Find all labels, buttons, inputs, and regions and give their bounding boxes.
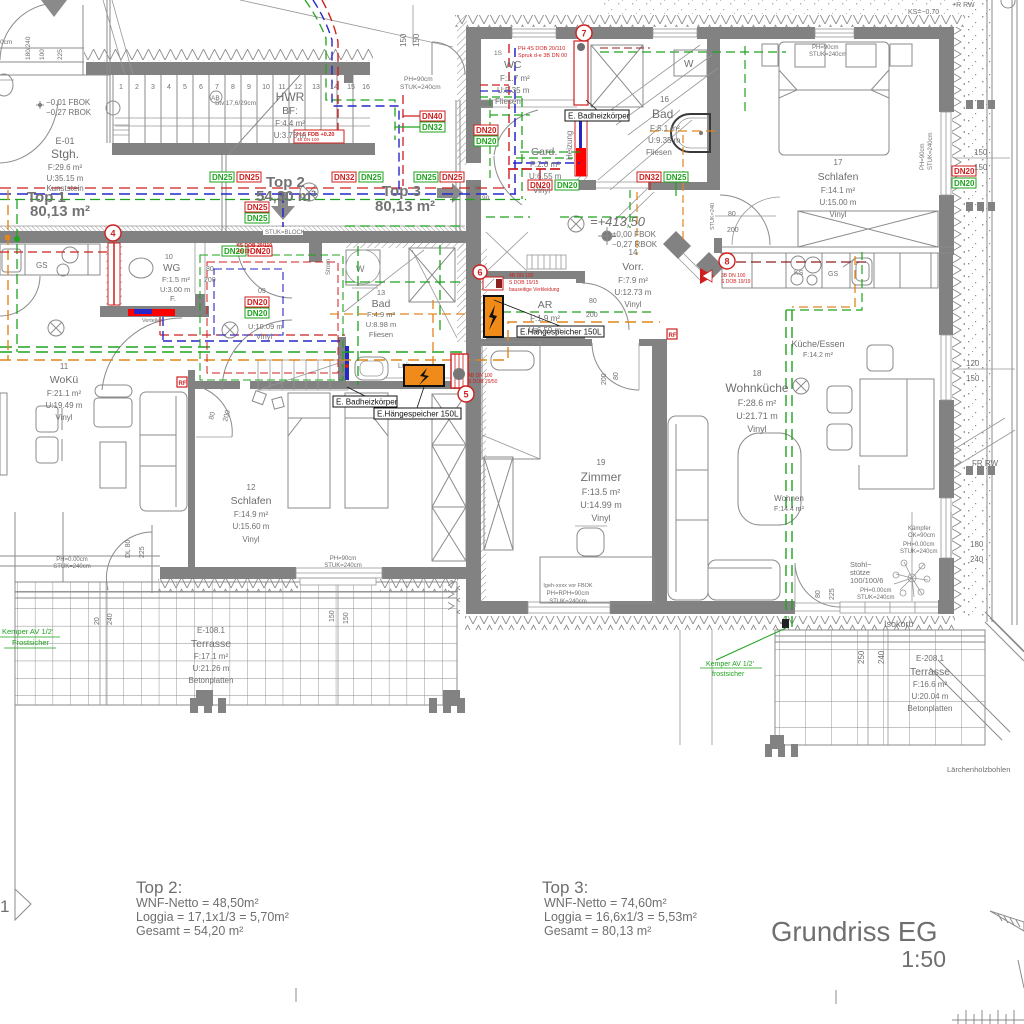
svg-text:DL 80: DL 80 — [125, 539, 132, 558]
svg-text:F:13.5 m²: F:13.5 m² — [582, 487, 621, 497]
svg-text:±0,00 FBOK: ±0,00 FBOK — [612, 230, 657, 239]
svg-text:19: 19 — [597, 458, 606, 467]
svg-text:11: 11 — [60, 362, 69, 371]
svg-text:PH=0.00cm: PH=0.00cm — [860, 588, 892, 594]
svg-text:Isokorb: Isokorb — [884, 619, 914, 629]
svg-text:DN25: DN25 — [212, 173, 233, 182]
svg-text:F:14.9 m²: F:14.9 m² — [234, 510, 269, 519]
svg-text:4: 4 — [167, 84, 171, 91]
svg-text:200: 200 — [586, 312, 598, 319]
svg-text:U:20.04 m: U:20.04 m — [912, 692, 949, 701]
svg-text:HWR: HWR — [276, 90, 305, 104]
svg-text:PH=90cm: PH=90cm — [920, 143, 926, 170]
svg-text:18: 18 — [753, 369, 762, 378]
svg-text:150: 150 — [412, 33, 421, 47]
svg-text:150: 150 — [399, 33, 408, 47]
svg-text:Top 2:: Top 2: — [136, 878, 182, 897]
svg-text:14: 14 — [330, 84, 338, 91]
svg-text:Terrasse: Terrasse — [191, 638, 231, 650]
svg-text:E-208.1: E-208.1 — [916, 654, 945, 663]
svg-text:8: 8 — [231, 84, 235, 91]
svg-text:F:14.2 m²: F:14.2 m² — [803, 352, 834, 359]
svg-text:1S: 1S — [494, 50, 503, 57]
svg-text:Bad: Bad — [372, 298, 391, 310]
svg-text:−0,01 FBOK: −0,01 FBOK — [46, 98, 91, 107]
svg-text:17: 17 — [834, 158, 843, 167]
svg-text:7: 7 — [581, 29, 586, 39]
svg-text:90: 90 — [482, 195, 490, 202]
svg-text:PH 4S DOB 20/110: PH 4S DOB 20/110 — [518, 46, 565, 52]
svg-text:W: W — [684, 59, 694, 70]
svg-text:Fliesen: Fliesen — [495, 97, 521, 106]
svg-text:WC: WC — [504, 59, 522, 71]
svg-text:225: 225 — [57, 49, 64, 60]
svg-text:200: 200 — [204, 277, 216, 284]
svg-text:STUK=240cm: STUK=240cm — [324, 563, 362, 569]
svg-text:10: 10 — [262, 84, 270, 91]
svg-text:U:5.35 m: U:5.35 m — [497, 86, 530, 95]
svg-text:−0,27 RBOK: −0,27 RBOK — [46, 108, 92, 117]
svg-text:8: 8 — [724, 257, 729, 267]
svg-text:U:15.60 m: U:15.60 m — [233, 522, 270, 531]
svg-text:U:9.35 m: U:9.35 m — [648, 136, 681, 145]
svg-text:Stv.17,6/29cm: Stv.17,6/29cm — [215, 100, 256, 107]
svg-text:Vorr.: Vorr. — [622, 261, 644, 273]
svg-text:Terrasse: Terrasse — [910, 666, 950, 678]
svg-text:250: 250 — [857, 650, 866, 664]
svg-text:DN40: DN40 — [422, 112, 443, 121]
svg-text:PH=0.00cm: PH=0.00cm — [56, 557, 88, 563]
svg-text:Vinyl: Vinyl — [55, 413, 72, 422]
svg-text:13: 13 — [312, 84, 320, 91]
svg-text:1:50: 1:50 — [901, 946, 946, 972]
svg-text:13: 13 — [377, 288, 385, 297]
svg-text:F:16.6 m²: F:16.6 m² — [913, 680, 948, 689]
svg-text:F:21.1 m²: F:21.1 m² — [47, 389, 82, 398]
svg-text:E.Hängespeicher 150L: E.Hängespeicher 150L — [377, 410, 459, 419]
svg-text:150: 150 — [329, 610, 336, 622]
svg-text:Schlafen: Schlafen — [231, 495, 272, 507]
svg-text:09: 09 — [258, 288, 266, 295]
svg-text:4B DN 100: 4B DN 100 — [509, 273, 534, 279]
svg-text:BF:: BF: — [282, 106, 298, 117]
svg-text:PH=0.00cm: PH=0.00cm — [903, 542, 935, 548]
svg-text:6: 6 — [199, 84, 203, 91]
svg-text:80: 80 — [613, 372, 620, 380]
svg-text:AB: AB — [211, 95, 220, 102]
svg-text:15: 15 — [347, 84, 355, 91]
svg-text:Loggia = 17,1x1/3 = 5,70m²: Loggia = 17,1x1/3 = 5,70m² — [136, 910, 289, 924]
svg-text:U:35.15 m: U:35.15 m — [47, 174, 84, 183]
svg-text:240: 240 — [877, 650, 886, 664]
svg-text:U:6.55 m: U:6.55 m — [529, 172, 562, 181]
svg-text:STUK=240cm: STUK=240cm — [928, 132, 934, 170]
svg-text:S DOB 19/19: S DOB 19/19 — [721, 279, 751, 285]
svg-text:150: 150 — [343, 612, 350, 624]
svg-text:240: 240 — [107, 613, 114, 625]
svg-text:U:15.00 m: U:15.00 m — [820, 198, 857, 207]
svg-text:20: 20 — [94, 617, 101, 625]
svg-text:F:14.1 m²: F:14.1 m² — [821, 186, 856, 195]
svg-text:DN25: DN25 — [239, 173, 260, 182]
svg-text:STUK=240: STUK=240 — [710, 203, 716, 230]
svg-text:12: 12 — [247, 483, 256, 492]
svg-text:Zimmer: Zimmer — [581, 470, 622, 484]
svg-text:bauseitige Verkleidung: bauseitige Verkleidung — [509, 287, 560, 293]
svg-text:Vinyl: Vinyl — [591, 513, 610, 523]
svg-text:Fliesen: Fliesen — [369, 330, 393, 339]
svg-text:90: 90 — [474, 185, 482, 192]
svg-text:80,13 m²: 80,13 m² — [375, 198, 435, 215]
svg-text:54,30 m²: 54,30 m² — [256, 188, 316, 205]
svg-text:200: 200 — [601, 373, 608, 385]
svg-text:Vinyl: Vinyl — [747, 424, 766, 434]
svg-text:16: 16 — [660, 95, 669, 104]
svg-text:F:4.9 m²: F:4.9 m² — [367, 310, 395, 319]
svg-text:80: 80 — [815, 590, 822, 598]
svg-text:DN20: DN20 — [247, 309, 268, 318]
svg-text:Vinyl: Vinyl — [829, 210, 846, 219]
svg-text:DN25: DN25 — [416, 173, 437, 182]
svg-text:DN25: DN25 — [442, 173, 463, 182]
svg-text:Stgh.: Stgh. — [51, 147, 79, 161]
svg-text:14: 14 — [629, 248, 638, 257]
svg-text:PH=90cm: PH=90cm — [404, 76, 433, 83]
svg-text:STUK=240cm: STUK=240cm — [53, 564, 91, 570]
svg-text:U:14.99 m: U:14.99 m — [580, 500, 622, 510]
svg-text:Betonplatten: Betonplatten — [908, 704, 953, 713]
svg-text:DN32: DN32 — [639, 173, 660, 182]
svg-text:Lärchenholzbohlen: Lärchenholzbohlen — [947, 765, 1010, 774]
svg-text:F:4.4 m²: F:4.4 m² — [275, 119, 305, 128]
svg-text:DN32: DN32 — [334, 173, 355, 182]
svg-text:Frostsicher: Frostsicher — [12, 638, 50, 647]
svg-text:Gesamt = 54,20 m²: Gesamt = 54,20 m² — [136, 924, 243, 938]
svg-text:F:14.4 m²: F:14.4 m² — [774, 506, 805, 513]
svg-text:1: 1 — [0, 897, 9, 916]
svg-text:200: 200 — [727, 227, 739, 234]
svg-text:RF: RF — [179, 381, 187, 387]
svg-text:STUK=240cm: STUK=240cm — [857, 595, 895, 601]
svg-text:Heizung: Heizung — [565, 131, 574, 160]
svg-text:+R RW: +R RW — [952, 2, 975, 9]
svg-text:DN20: DN20 — [954, 167, 975, 176]
svg-text:225: 225 — [139, 546, 146, 558]
svg-text:U:21.71 m: U:21.71 m — [736, 411, 778, 421]
svg-text:Loggia = 16,6x1/3 = 5,53m²: Loggia = 16,6x1/3 = 5,53m² — [544, 910, 697, 924]
svg-text:3: 3 — [151, 84, 155, 91]
svg-text:240: 240 — [970, 555, 984, 564]
svg-text:F:28.6 m²: F:28.6 m² — [738, 398, 777, 408]
svg-text:7: 7 — [215, 84, 219, 91]
svg-text:DN20: DN20 — [557, 181, 578, 190]
svg-text:U:19.49 m: U:19.49 m — [46, 401, 83, 410]
svg-text:WNF-Netto = 48,50m²: WNF-Netto = 48,50m² — [136, 896, 259, 910]
svg-text:0cm: 0cm — [0, 39, 12, 46]
svg-text:U:6.59 m: U:6.59 m — [529, 326, 562, 335]
svg-text:Kämpfer: Kämpfer — [908, 526, 931, 532]
svg-text:180: 180 — [970, 540, 984, 549]
svg-text:PH=90cm: PH=90cm — [812, 45, 839, 51]
svg-text:F:29.6 m²: F:29.6 m² — [48, 163, 83, 172]
svg-text:6: 6 — [477, 268, 482, 278]
svg-text:KS: KS — [794, 270, 804, 277]
svg-text:U:21.26 m: U:21.26 m — [193, 664, 230, 673]
svg-text:180/240: 180/240 — [25, 36, 32, 60]
svg-text:Gesamt = 80,13 m²: Gesamt = 80,13 m² — [544, 924, 651, 938]
svg-text:100: 100 — [39, 49, 46, 60]
svg-text:16: 16 — [362, 84, 370, 91]
svg-text:frostsicher: frostsicher — [712, 671, 745, 678]
svg-text:F:1.9 m²: F:1.9 m² — [530, 314, 560, 323]
svg-text:WoKü: WoKü — [50, 374, 79, 386]
svg-text:4: 4 — [110, 229, 115, 239]
svg-text:PH=90cm: PH=90cm — [330, 556, 357, 562]
svg-text:F:1.5 m²: F:1.5 m² — [162, 275, 190, 284]
svg-text:U:3.00 m: U:3.00 m — [160, 285, 190, 294]
svg-text:U:3.78 m: U:3.78 m — [274, 131, 307, 140]
svg-text:RF: RF — [669, 333, 677, 339]
svg-text:Küche/Essen: Küche/Essen — [791, 339, 844, 349]
svg-text:PH=RPH=90cm: PH=RPH=90cm — [547, 591, 590, 597]
svg-text:Grundriss EG: Grundriss EG — [771, 916, 938, 947]
svg-text:E-108.1: E-108.1 — [197, 626, 226, 635]
svg-text:Bad: Bad — [652, 107, 673, 121]
svg-text:STUK=240cm: STUK=240cm — [549, 599, 587, 605]
svg-text:DN20: DN20 — [476, 137, 497, 146]
svg-text:Kemper AV 1/2′: Kemper AV 1/2′ — [706, 661, 755, 668]
svg-text:F:2.6 m²: F:2.6 m² — [530, 160, 560, 169]
svg-text:Wohnen: Wohnen — [774, 494, 804, 503]
svg-text:F:5.1 m²: F:5.1 m² — [650, 124, 680, 133]
svg-text:DN20: DN20 — [954, 179, 975, 188]
svg-text:150: 150 — [974, 148, 988, 157]
svg-text:GS: GS — [828, 271, 838, 278]
svg-text:Vinyl: Vinyl — [624, 300, 641, 309]
svg-text:S DOB 29/50: S DOB 29/50 — [468, 379, 498, 385]
svg-text:F:17.1 m²: F:17.1 m² — [194, 652, 229, 661]
svg-text:WNF-Netto = 74,60m²: WNF-Netto = 74,60m² — [544, 896, 667, 910]
svg-text:STUK=240cm: STUK=240cm — [809, 52, 847, 58]
svg-text:Kemper AV 1/2′: Kemper AV 1/2′ — [2, 627, 54, 636]
svg-text:Gard.: Gard. — [531, 146, 557, 158]
svg-text:Strom: Strom — [326, 259, 332, 275]
svg-text:80,13 m²: 80,13 m² — [30, 203, 90, 220]
svg-text:Vinyl: Vinyl — [256, 332, 272, 341]
svg-text:DN20: DN20 — [247, 298, 268, 307]
svg-text:KS=−0.70: KS=−0.70 — [908, 9, 939, 16]
svg-text:2: 2 — [135, 84, 139, 91]
svg-text:4B DN 100: 4B DN 100 — [237, 249, 262, 255]
svg-text:Verteiler: Verteiler — [142, 318, 162, 324]
svg-text:STUK=240cm: STUK=240cm — [900, 549, 938, 555]
svg-text:Top 3:: Top 3: — [542, 878, 588, 897]
svg-text:150: 150 — [974, 163, 988, 172]
svg-text:F:1.7 m²: F:1.7 m² — [500, 74, 530, 83]
svg-text:150: 150 — [966, 374, 980, 383]
svg-text:GS: GS — [36, 261, 48, 270]
svg-text:225: 225 — [829, 588, 836, 600]
svg-text:5: 5 — [183, 84, 187, 91]
svg-text:80: 80 — [728, 211, 736, 218]
svg-text:80: 80 — [589, 298, 597, 305]
svg-text:E-01: E-01 — [55, 136, 74, 146]
svg-text:DN25: DN25 — [666, 173, 687, 182]
svg-text:Vinyl: Vinyl — [242, 535, 259, 544]
svg-text:Vinyl: Vinyl — [533, 186, 550, 195]
svg-text:Betonplatten: Betonplatten — [189, 676, 234, 685]
svg-text:Spruk d-e 3B DN 00: Spruk d-e 3B DN 00 — [518, 53, 567, 59]
svg-text:Igeh-xxxx vor FBOK: Igeh-xxxx vor FBOK — [543, 583, 593, 589]
svg-text:U:12.73 m: U:12.73 m — [615, 288, 652, 297]
svg-text:F:7.9 m²: F:7.9 m² — [618, 276, 648, 285]
svg-text:Wohnküche: Wohnküche — [725, 381, 788, 395]
svg-text:100/100/6: 100/100/6 — [850, 576, 883, 585]
svg-text:AR: AR — [538, 299, 553, 311]
svg-text:U:10.09 m: U:10.09 m — [248, 322, 283, 331]
svg-text:DN32: DN32 — [422, 123, 443, 132]
svg-text:5: 5 — [463, 390, 468, 400]
svg-text:Schlafen: Schlafen — [818, 171, 859, 183]
svg-text:E. Badheizkörper: E. Badheizkörper — [336, 398, 398, 407]
svg-text:STUK=BLOCK: STUK=BLOCK — [265, 230, 305, 236]
svg-text:OK=90cm: OK=90cm — [908, 533, 935, 539]
svg-text:80: 80 — [206, 266, 214, 273]
svg-text:U:8.98 m: U:8.98 m — [366, 320, 396, 329]
svg-text:F.: F. — [170, 294, 176, 303]
svg-text:10: 10 — [165, 254, 173, 261]
svg-text:9: 9 — [247, 84, 251, 91]
svg-text:STUK=240cm: STUK=240cm — [400, 84, 441, 91]
svg-text:WG: WG — [163, 263, 180, 274]
svg-text:DN25: DN25 — [247, 214, 268, 223]
svg-text:=+413,50: =+413,50 — [590, 214, 646, 229]
svg-text:DN25: DN25 — [361, 173, 382, 182]
svg-text:120: 120 — [966, 359, 980, 368]
svg-text:S DOB 19/15: S DOB 19/15 — [509, 280, 539, 286]
svg-text:E. Badheizkörper: E. Badheizkörper — [568, 112, 630, 121]
svg-text:DN20: DN20 — [476, 126, 497, 135]
svg-text:Fliesen: Fliesen — [646, 148, 672, 157]
svg-text:1: 1 — [119, 84, 123, 91]
